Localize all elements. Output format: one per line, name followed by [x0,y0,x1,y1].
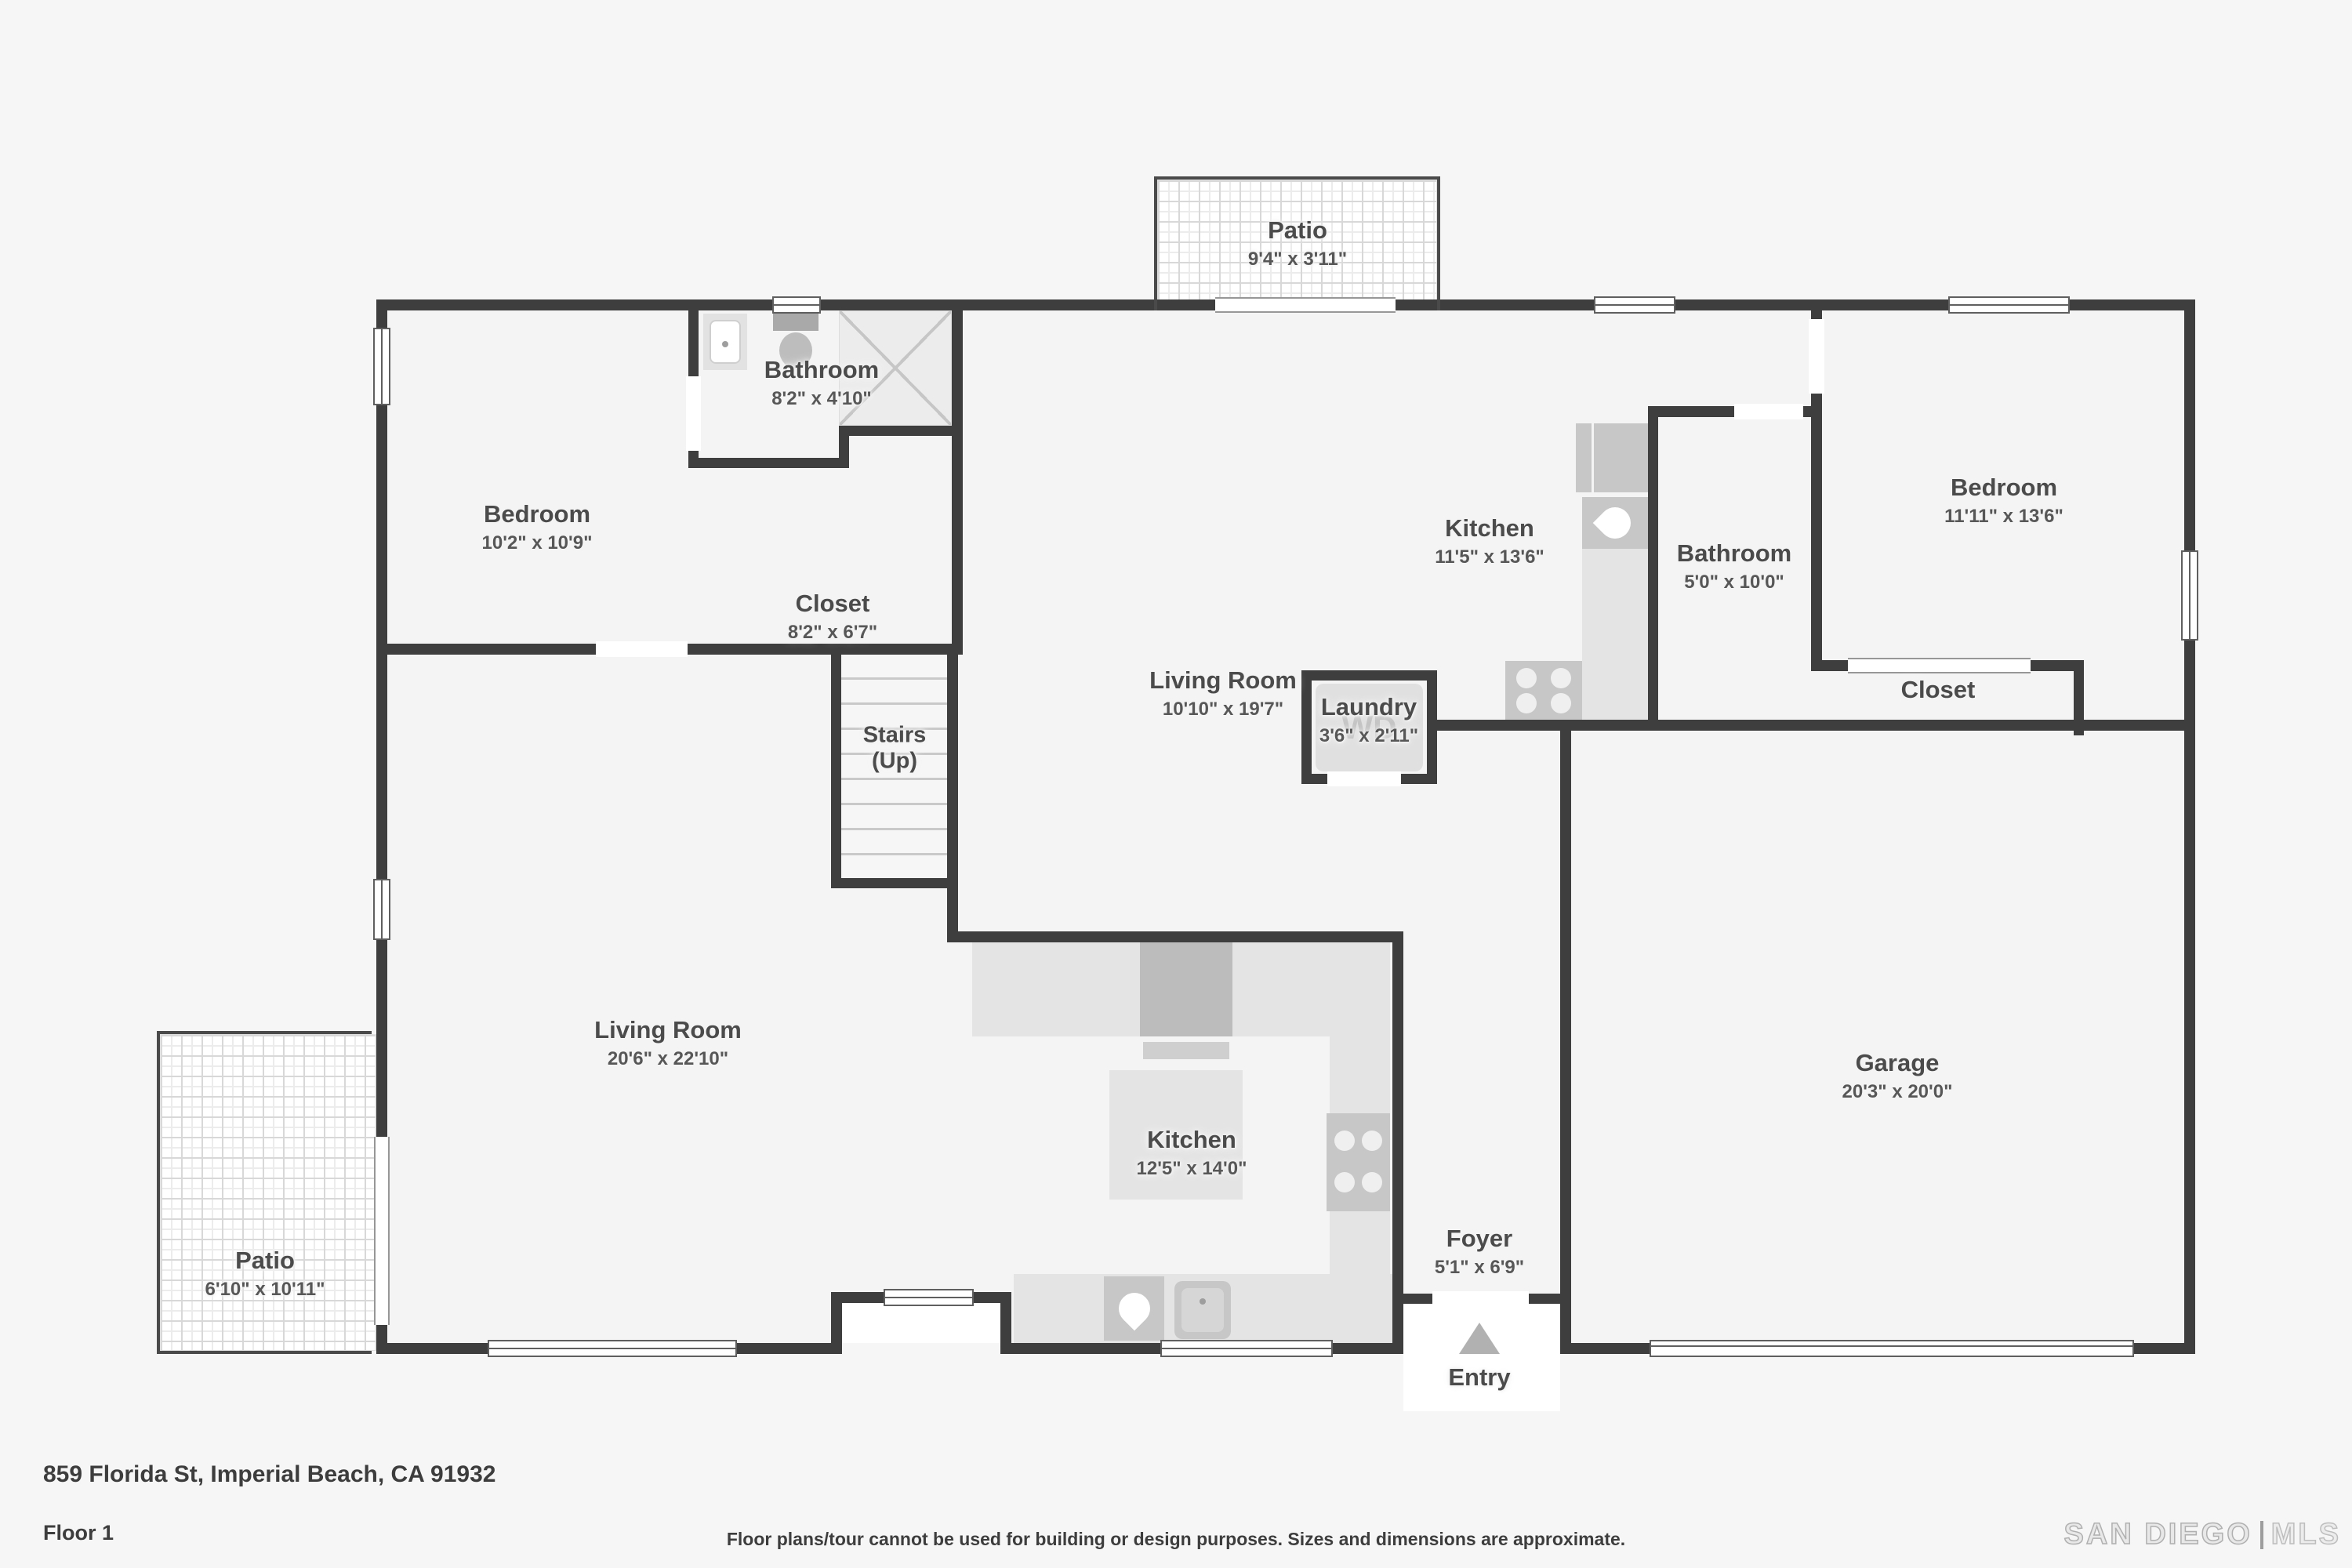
dishwasher-door-icon [1181,1288,1224,1332]
door-opening [1734,404,1803,419]
burner-icon [1551,693,1571,713]
window [884,1289,974,1306]
exterior-cutout [842,1303,1000,1343]
disclaimer: Floor plans/tour cannot be used for buil… [0,1529,2352,1550]
room-name: Garage [1856,1049,1940,1077]
window [772,296,821,314]
burner-icon [1516,693,1537,713]
floor-plan-page: WDPatio9'4" x 3'11"Bathroom8'2" x 4'10"B… [0,0,2352,1568]
room-dimensions: 10'10" x 19'7" [1163,699,1283,720]
room-label-kitchen-lower: Kitchen12'5" x 14'0" [1137,1126,1247,1179]
bsink-fixture [703,314,747,370]
room-dimensions: 11'5" x 13'6" [1435,547,1544,568]
wall [1392,1304,1403,1354]
room-label-patio-lower: Patio6'10" x 10'11" [205,1247,325,1300]
stove-fixture [1505,661,1582,721]
door-opening [1327,771,1401,786]
room-dimensions: 8'2" x 4'10" [771,389,872,409]
wall [947,644,958,942]
logo-san-diego: SAN DIEGO [2064,1518,2252,1552]
room-dimensions: 6'10" x 10'11" [205,1279,325,1300]
wall [688,458,849,468]
window [373,879,390,940]
room-label-entry: Entry [1448,1363,1510,1392]
patio-border [1154,176,1157,310]
room-dimensions: 3'6" x 2'11" [1319,726,1418,746]
room-label-living-room-lower: Living Room20'6" x 22'10" [594,1016,742,1069]
window [2181,550,2198,641]
room-label-patio-top: Patio9'4" x 3'11" [1248,216,1347,270]
fridge-fixture [1576,423,1648,492]
room-name: Kitchen [1147,1126,1236,1154]
wall [1560,731,1571,1354]
door-opening [1432,1291,1529,1306]
counter-fixture [1582,549,1648,724]
room-dimensions: 12'5" x 14'0" [1137,1159,1247,1179]
dark-fixture [1140,942,1232,1036]
room-dimensions: 20'6" x 22'10" [608,1049,728,1069]
wall [1301,670,1312,784]
patio-border [157,1031,160,1354]
room-dimensions: 9'4" x 3'11" [1248,249,1347,270]
drain-icon [722,341,728,347]
room-name: Closet [796,590,870,618]
garage-door [1650,1340,2134,1357]
room-label-bathroom-right: Bathroom5'0" x 10'0" [1677,539,1791,593]
wall [1648,406,1658,731]
room-dimensions: (Up) [872,749,917,775]
window [488,1340,737,1357]
wall [831,878,958,888]
burner-icon [1551,668,1571,688]
room-label-living-room-upper: Living Room10'10" x 19'7" [1149,666,1297,720]
room-name: Stairs [863,723,927,749]
bathroom-sink-basin-icon [710,320,741,364]
window [1594,296,1675,314]
room-name: Patio [235,1247,295,1275]
room-label-closet-upper-left: Closet8'2" x 6'7" [788,590,877,643]
vent-fixture [1143,1042,1229,1059]
burner-icon [1516,668,1537,688]
room-label-bedroom-upper-left: Bedroom10'2" x 10'9" [482,500,593,554]
floor-plan: WDPatio9'4" x 3'11"Bathroom8'2" x 4'10"B… [0,0,2352,1568]
burner-icon [1362,1172,1382,1192]
patio-border [1437,176,1440,310]
wall [1392,931,1403,1304]
room-label-garage: Garage20'3" x 20'0" [1842,1049,1953,1102]
stove-fixture [1327,1113,1390,1211]
burner-icon [1362,1131,1382,1151]
sliding-door [1848,658,2031,673]
room-name: Living Room [594,1016,742,1044]
patio-border [157,1031,372,1034]
sink-fixture [1582,497,1648,549]
dishwasher-knob-icon [1200,1298,1206,1305]
wall [2184,299,2195,1354]
room-label-closet-right: Closet [1901,676,1976,704]
room-dimensions: 10'2" x 10'9" [482,533,593,554]
room-name: Living Room [1149,666,1297,695]
sliding-door [374,1137,390,1325]
wall [952,299,963,655]
ttank-fixture [773,312,818,331]
room-label-kitchen-upper: Kitchen11'5" x 13'6" [1435,514,1544,568]
room-name: Bathroom [1677,539,1791,568]
room-name: Bedroom [1951,474,2057,502]
patio-border [157,1351,372,1354]
door-opening [596,641,688,657]
door-opening [1809,319,1824,394]
room-dimensions: 11'11" x 13'6" [1944,506,2063,527]
patio-border [1154,176,1440,180]
room-name: Laundry [1321,693,1417,721]
address: 859 Florida St, Imperial Beach, CA 91932 [43,1461,495,1488]
room-label-stairs: Stairs(Up) [863,723,927,775]
counter-fixture [1330,942,1390,1274]
entry-arrow-icon [1459,1323,1500,1354]
wall [839,426,849,468]
room-label-bathroom-upper: Bathroom8'2" x 4'10" [764,356,879,409]
logo-mls: MLS [2271,1518,2341,1552]
room-name: Bathroom [764,356,879,384]
room-name: Foyer [1446,1225,1512,1253]
logo-separator-icon [2260,1521,2263,1549]
room-name: Patio [1268,216,1327,245]
patio-surface [160,1034,376,1351]
window [1160,1340,1333,1357]
wall [831,644,841,888]
floor-area [387,310,2184,1343]
burner-icon [1334,1172,1355,1192]
room-label-laundry: Laundry3'6" x 2'11" [1319,693,1418,746]
sink-basin-icon [1112,1287,1156,1331]
room-name: Closet [1901,676,1976,704]
wall [839,426,952,436]
sink-fixture [1104,1276,1164,1341]
burner-icon [1334,1131,1355,1151]
room-name: Entry [1448,1363,1510,1392]
wall [1427,670,1437,784]
room-dimensions: 20'3" x 20'0" [1842,1082,1953,1102]
sink-basin-icon [1593,501,1638,546]
room-dimensions: 5'0" x 10'0" [1684,572,1784,593]
window [1948,296,2070,314]
fridge-door-split-icon [1592,423,1594,492]
mls-logo: SAN DIEGO MLS [2064,1518,2341,1552]
wall [2074,660,2084,735]
exterior-cutout [1403,1304,1560,1411]
room-dimensions: 8'2" x 6'7" [788,622,877,643]
window [373,328,390,405]
room-dimensions: 5'1" x 6'9" [1435,1258,1524,1278]
dw-fixture [1174,1281,1231,1339]
door-opening [686,376,701,451]
sliding-door [1215,297,1396,313]
room-name: Kitchen [1445,514,1534,543]
room-label-bedroom-right: Bedroom11'11" x 13'6" [1944,474,2063,527]
wall [947,931,1403,942]
wall [1301,670,1437,681]
room-name: Bedroom [484,500,590,528]
room-label-foyer: Foyer5'1" x 6'9" [1435,1225,1524,1278]
